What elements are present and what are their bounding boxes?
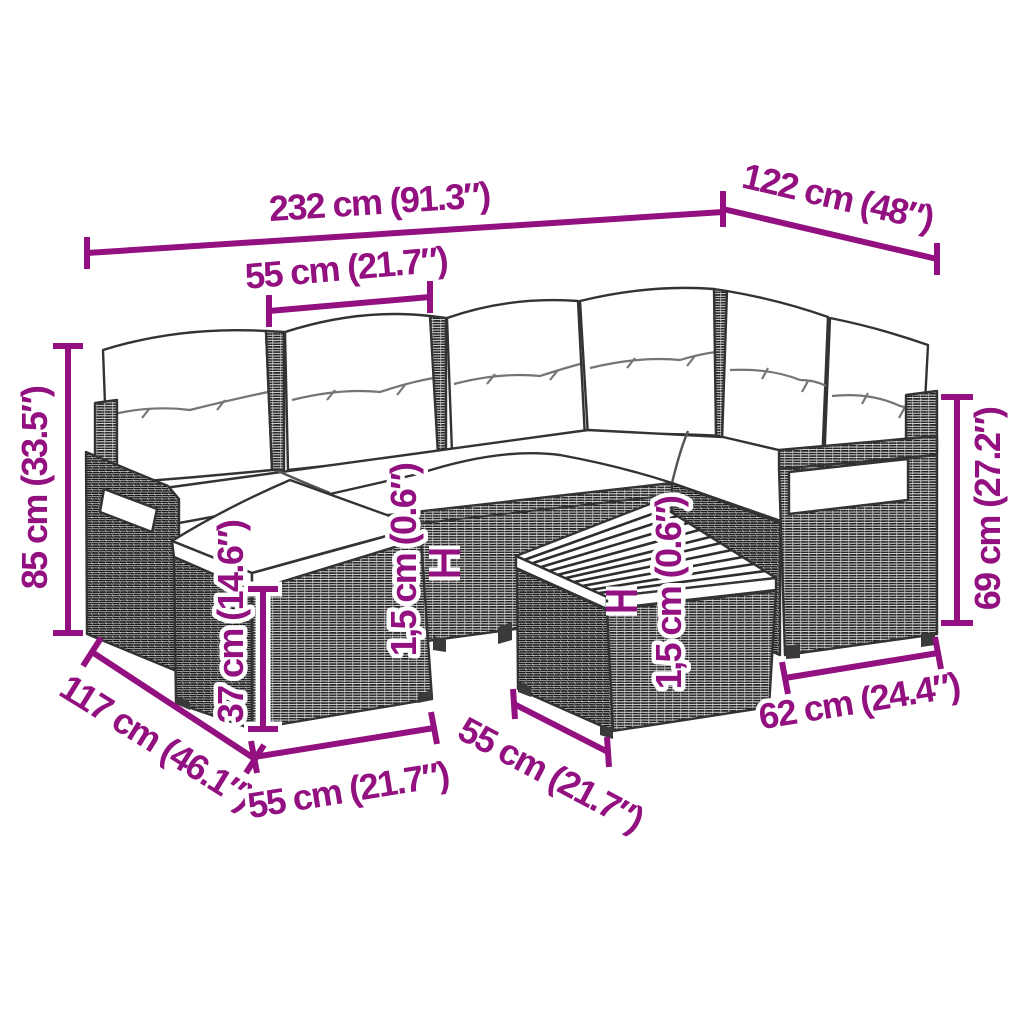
svg-text:1,5 cm (0.6″): 1,5 cm (0.6″) xyxy=(648,496,689,689)
svg-text:85 cm (33.5″): 85 cm (33.5″) xyxy=(14,386,55,589)
svg-text:37 cm (14.6″): 37 cm (14.6″) xyxy=(210,520,251,723)
svg-text:1,5 cm (0.6″): 1,5 cm (0.6″) xyxy=(383,463,424,656)
svg-text:69 cm (27.2″): 69 cm (27.2″) xyxy=(967,407,1008,610)
